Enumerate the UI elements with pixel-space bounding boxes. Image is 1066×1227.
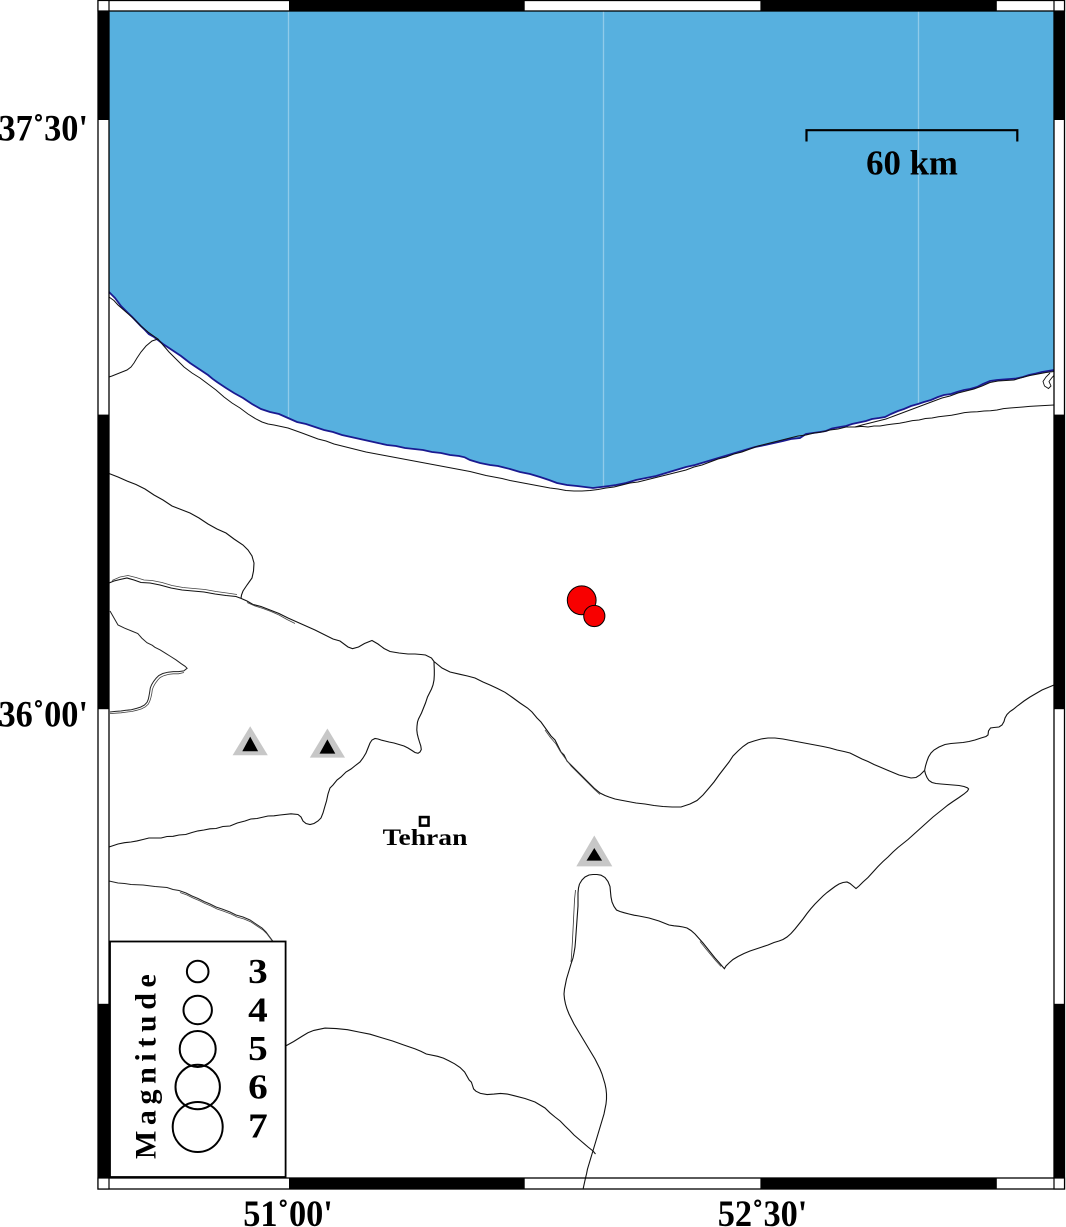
svg-text:37˚30': 37˚30' [0,108,88,149]
svg-text:51˚00': 51˚00' [243,1193,333,1227]
svg-text:4: 4 [248,992,268,1030]
svg-text:6: 6 [248,1069,268,1107]
svg-text:60 km: 60 km [866,144,958,183]
svg-text:36˚00': 36˚00' [0,693,88,734]
svg-text:5: 5 [248,1030,268,1068]
svg-text:7: 7 [248,1108,268,1146]
svg-text:Tehran: Tehran [383,825,468,850]
svg-text:3: 3 [248,953,268,991]
svg-text:Magnitude: Magnitude [130,969,163,1159]
svg-text:52˚30': 52˚30' [718,1193,808,1227]
